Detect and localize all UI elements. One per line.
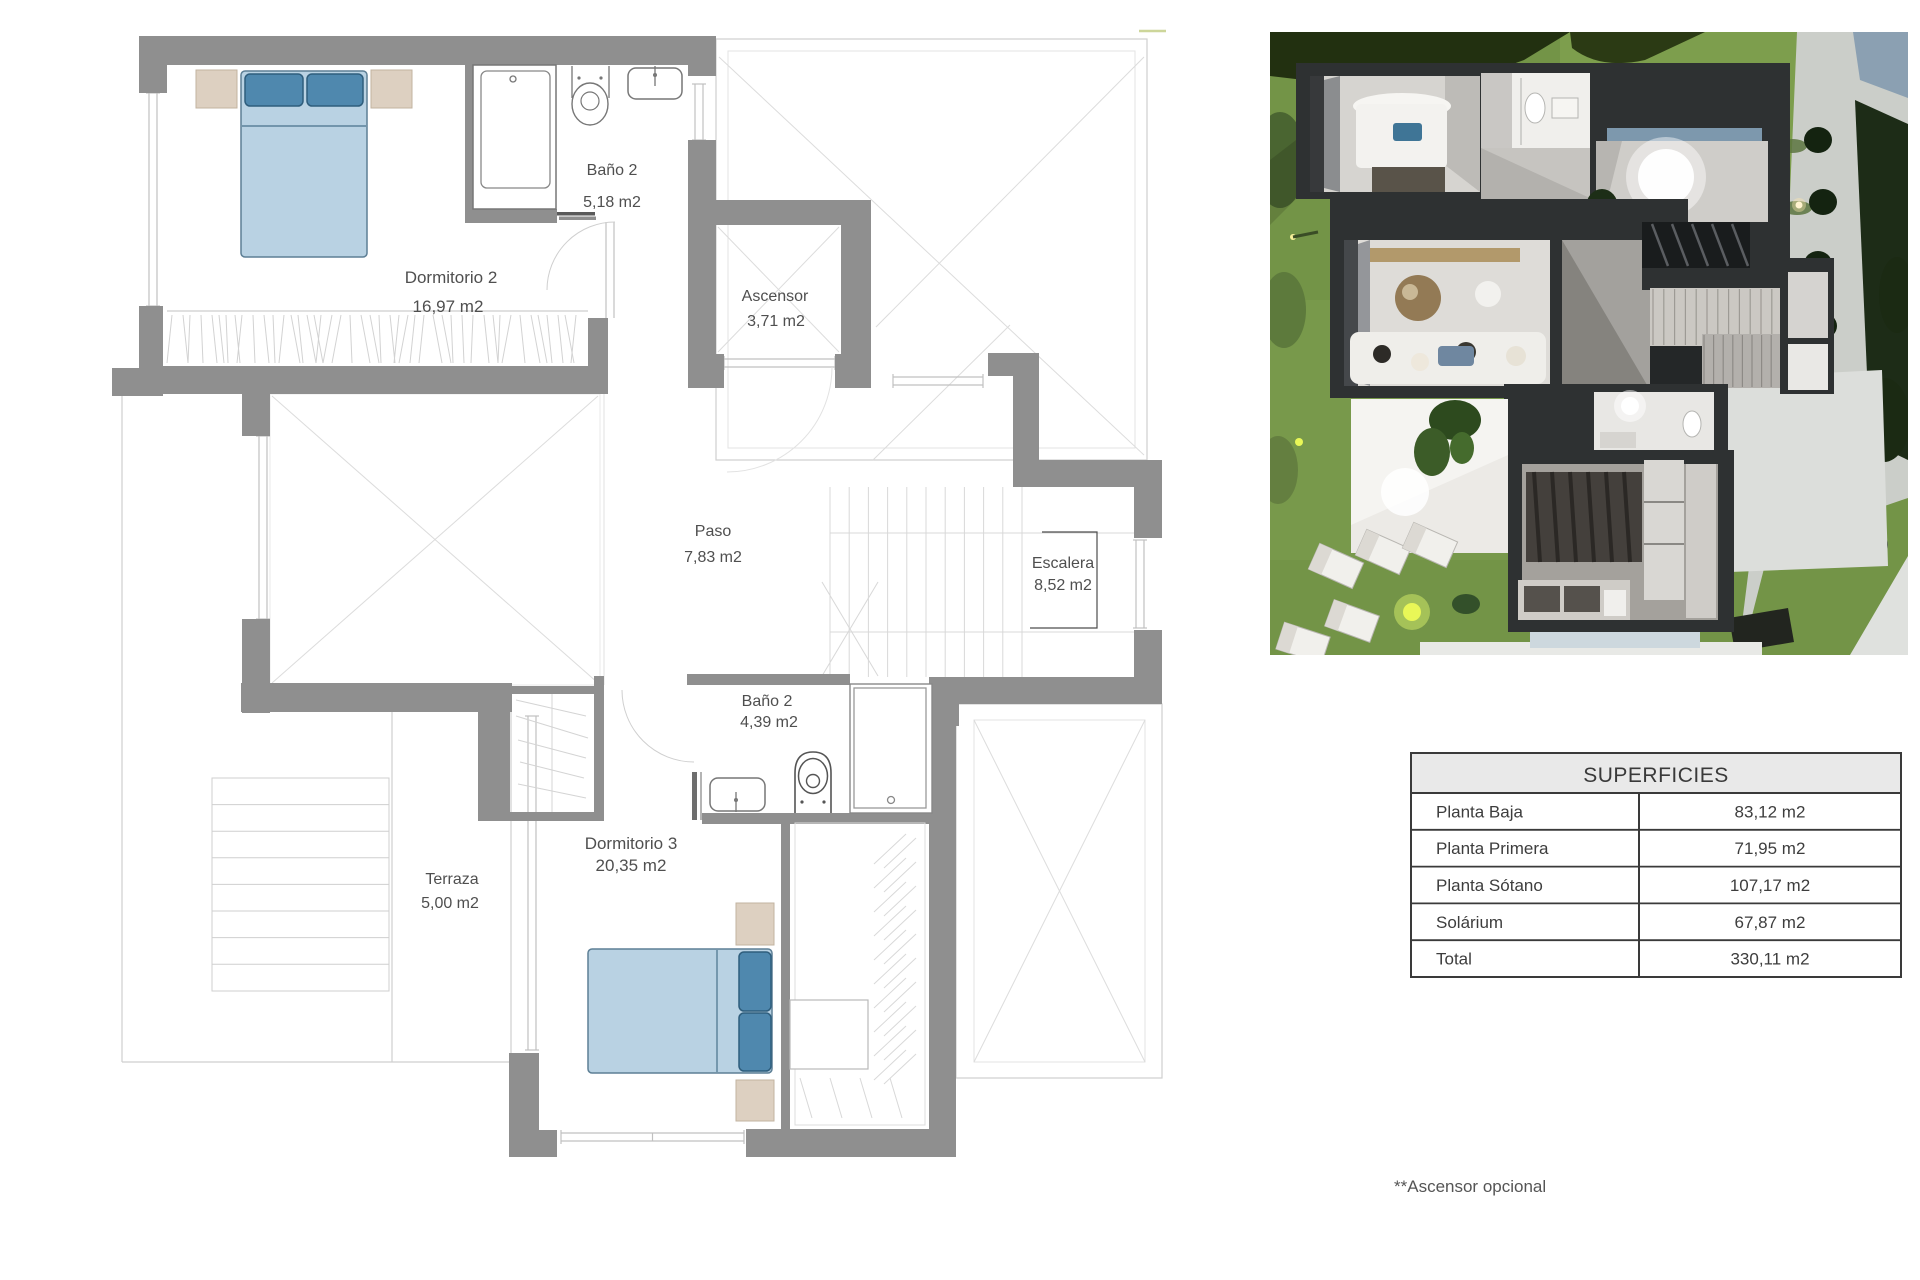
svg-text:Paso: Paso <box>695 523 732 540</box>
svg-text:**Ascensor opcional: **Ascensor opcional <box>1394 1177 1546 1196</box>
svg-text:SUPERFICIES: SUPERFICIES <box>1583 764 1729 787</box>
svg-text:Dormitorio 3: Dormitorio 3 <box>585 834 678 853</box>
svg-text:7,83 m2: 7,83 m2 <box>684 549 742 566</box>
svg-text:Planta Baja: Planta Baja <box>1436 802 1523 821</box>
svg-text:330,11 m2: 330,11 m2 <box>1730 950 1809 969</box>
svg-text:Escalera: Escalera <box>1032 555 1094 572</box>
svg-text:16,97 m2: 16,97 m2 <box>413 297 484 316</box>
svg-text:107,17 m2: 107,17 m2 <box>1730 876 1810 895</box>
svg-text:Total: Total <box>1436 950 1472 969</box>
svg-text:83,12 m2: 83,12 m2 <box>1735 802 1806 821</box>
svg-text:71,95 m2: 71,95 m2 <box>1735 839 1806 858</box>
svg-text:Dormitorio 2: Dormitorio 2 <box>405 268 498 287</box>
svg-text:5,00 m2: 5,00 m2 <box>421 895 479 912</box>
svg-text:Terraza: Terraza <box>425 871 478 888</box>
svg-text:Planta Primera: Planta Primera <box>1436 839 1549 858</box>
svg-text:Planta Sótano: Planta Sótano <box>1436 876 1543 895</box>
svg-text:Baño 2: Baño 2 <box>587 162 638 179</box>
svg-text:5,18 m2: 5,18 m2 <box>583 194 641 211</box>
svg-text:3,71 m2: 3,71 m2 <box>747 313 805 330</box>
svg-text:Solárium: Solárium <box>1436 913 1503 932</box>
svg-text:Ascensor: Ascensor <box>742 288 809 305</box>
svg-text:67,87 m2: 67,87 m2 <box>1735 913 1806 932</box>
svg-text:4,39 m2: 4,39 m2 <box>740 714 798 731</box>
svg-text:8,52 m2: 8,52 m2 <box>1034 577 1092 594</box>
svg-text:20,35 m2: 20,35 m2 <box>596 856 667 875</box>
svg-text:Baño 2: Baño 2 <box>742 693 793 710</box>
